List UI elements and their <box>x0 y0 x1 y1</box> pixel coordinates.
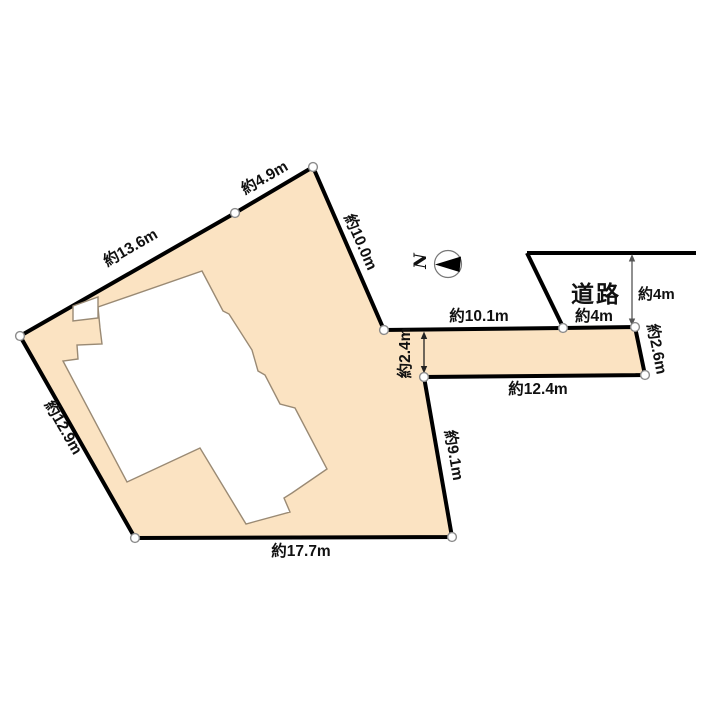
vertex-marker <box>380 326 389 335</box>
vertex-marker <box>559 324 568 333</box>
north-label: N <box>411 252 431 270</box>
edge-label-ef: 約4m <box>575 306 613 325</box>
edge-label-fg: 約2.6m <box>643 322 671 376</box>
vertex-marker <box>309 163 318 172</box>
vertex-marker <box>420 373 429 382</box>
edge-label-hi: 約9.1m <box>441 428 469 481</box>
vertex-marker <box>231 209 240 218</box>
vertex-marker <box>641 371 650 380</box>
edge-label-ij: 約17.7m <box>271 541 330 560</box>
dimension-arrow-road-width <box>629 254 635 326</box>
edge-label-de: 約10.1m <box>449 306 508 325</box>
road-edge-diagonal <box>527 253 563 327</box>
edge-label-gh: 約12.4m <box>508 379 567 398</box>
north-compass-icon: N <box>411 251 462 278</box>
diagram-canvas: N 約13.6m 約4.9m 約10.0m 約10.1m 約4m 約2.6m 約… <box>0 0 720 720</box>
road-label: 道路 <box>571 281 621 307</box>
road-width-label: 約4m <box>638 285 675 303</box>
vertex-marker <box>448 533 457 542</box>
strip-width-label: 約2.4m <box>395 328 414 379</box>
vertex-marker <box>131 534 140 543</box>
plot-diagram: N 約13.6m 約4.9m 約10.0m 約10.1m 約4m 約2.6m 約… <box>0 0 720 720</box>
vertex-marker <box>16 332 25 341</box>
vertex-marker <box>631 323 640 332</box>
